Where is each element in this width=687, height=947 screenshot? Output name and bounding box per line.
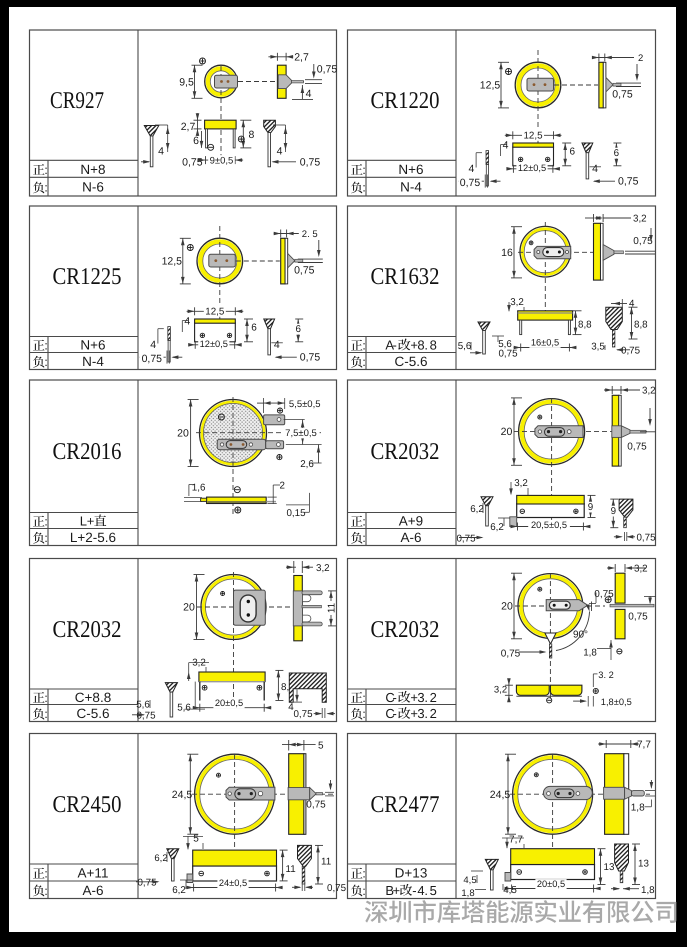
svg-text:0,75: 0,75 [327,883,347,894]
svg-text:4: 4 [158,146,164,158]
svg-text::: : [44,884,47,898]
svg-text:16: 16 [501,247,513,259]
svg-text::: : [362,339,365,353]
svg-text:20: 20 [183,602,195,614]
svg-text:6: 6 [295,324,301,335]
svg-text:6,2: 6,2 [470,504,484,515]
svg-text:4,5: 4,5 [503,885,517,896]
svg-text:0,75: 0,75 [317,64,338,76]
svg-text:16±0,5: 16±0,5 [531,338,559,348]
svg-text:11: 11 [286,864,296,875]
svg-text::: : [362,691,365,705]
svg-text:CR927: CR927 [50,88,104,114]
svg-text::: : [44,707,47,721]
svg-text:0,75: 0,75 [501,649,521,660]
svg-text:6,2: 6,2 [490,522,504,533]
svg-text::: : [44,515,47,529]
svg-text:9,5: 9,5 [179,77,194,89]
svg-text::: : [362,181,365,195]
svg-text:CR1632: CR1632 [371,264,440,290]
svg-text:0,75: 0,75 [636,533,656,544]
svg-text:90°: 90° [573,630,588,641]
svg-text:+: + [393,883,401,898]
svg-text:0,75: 0,75 [627,442,647,453]
svg-text::: : [44,339,47,353]
svg-text:CR2032: CR2032 [371,617,440,643]
svg-text:1,8: 1,8 [641,885,655,896]
svg-text:12,5: 12,5 [205,306,225,317]
svg-text:3. 2: 3. 2 [598,670,614,680]
svg-text::: : [362,515,365,529]
svg-text::: : [44,355,47,369]
svg-text:9: 9 [588,502,593,513]
svg-text:0,75: 0,75 [293,709,313,720]
svg-text:5: 5 [318,741,324,752]
svg-text:11: 11 [321,857,331,868]
svg-text:4: 4 [274,339,280,351]
svg-text:3,2: 3,2 [634,564,648,575]
svg-text:0,75: 0,75 [142,353,163,365]
svg-text:C-5.6: C-5.6 [394,354,427,369]
svg-text:24,5: 24,5 [172,789,193,801]
svg-text:4: 4 [150,339,156,351]
svg-text:CR1220: CR1220 [371,88,440,114]
svg-text:12,5: 12,5 [523,130,543,141]
svg-text:11: 11 [327,603,338,613]
svg-text:20±0,5: 20±0,5 [215,698,243,708]
svg-text::: : [362,163,365,177]
svg-text:6: 6 [251,323,257,334]
svg-text:3,2: 3,2 [316,563,330,574]
svg-text:CR2032: CR2032 [371,439,440,465]
svg-text:.: . [424,338,428,353]
svg-text:0,75: 0,75 [300,157,321,169]
svg-text:0,75: 0,75 [618,176,639,188]
svg-text:4: 4 [277,146,283,158]
svg-text:0,15: 0,15 [286,508,306,519]
svg-text:3,2: 3,2 [192,658,206,669]
svg-text:3,2: 3,2 [510,297,524,308]
svg-text:8,8: 8,8 [634,320,648,331]
svg-text:20: 20 [501,601,513,613]
svg-text:8: 8 [430,338,437,353]
svg-text:8: 8 [249,129,255,141]
svg-text:-: - [412,883,416,898]
svg-text:4: 4 [306,88,312,100]
svg-text:CR2032: CR2032 [53,617,122,643]
svg-text:2: 2 [280,480,285,491]
svg-text::: : [362,884,365,898]
svg-text:4,5: 4,5 [463,875,476,886]
svg-text:24±0,5: 24±0,5 [219,878,247,888]
svg-text:1,8±0,5: 1,8±0,5 [601,697,632,707]
svg-text::: : [44,163,47,177]
svg-text:N-6: N-6 [82,180,104,195]
svg-text:12±0,5: 12±0,5 [518,163,546,173]
svg-text:.: . [424,690,428,705]
svg-text:0,75: 0,75 [182,157,203,169]
svg-text:A+9: A+9 [399,514,423,529]
svg-text:2: 2 [638,53,643,64]
svg-text:C+8.8: C+8.8 [75,690,111,705]
svg-text:20±0,5: 20±0,5 [537,879,565,889]
svg-text:9±0,5: 9±0,5 [210,155,234,166]
svg-text:CR2477: CR2477 [371,792,440,818]
svg-text::: : [44,181,47,195]
svg-text:9: 9 [611,506,616,517]
svg-text:N-4: N-4 [400,180,422,195]
svg-text::: : [362,867,365,881]
svg-text:6: 6 [570,147,576,158]
svg-text:2: 2 [430,690,437,705]
svg-text:2,7: 2,7 [181,121,196,133]
svg-text:0,75: 0,75 [498,349,518,360]
svg-text:4: 4 [184,316,190,328]
svg-text:L+2-5.6: L+2-5.6 [70,530,116,545]
svg-text:N+6: N+6 [398,162,423,177]
svg-text:13: 13 [638,859,649,870]
svg-text:5: 5 [430,883,437,898]
svg-text:.: . [424,706,428,721]
svg-text:6,2: 6,2 [172,885,186,896]
svg-text:5,6: 5,6 [458,341,472,352]
svg-text:N-4: N-4 [82,354,104,369]
svg-text:CR1225: CR1225 [53,264,122,290]
svg-text::: : [362,707,365,721]
svg-text:A+11: A+11 [78,866,109,881]
svg-text:6: 6 [193,135,199,147]
svg-text:-: - [393,690,397,705]
svg-text::: : [44,691,47,705]
svg-text:CR2016: CR2016 [53,439,122,465]
svg-text:4: 4 [468,163,474,175]
svg-text:20: 20 [501,426,513,438]
svg-text:N+6: N+6 [80,338,105,353]
svg-text:C-5.6: C-5.6 [76,706,109,721]
svg-text:.: . [424,883,428,898]
svg-text:0,75: 0,75 [456,534,476,545]
svg-text:7,7: 7,7 [637,740,651,751]
svg-text:0,75: 0,75 [300,352,321,364]
svg-text:4: 4 [629,299,635,310]
svg-text:12±0,5: 12±0,5 [200,339,228,349]
svg-text:6: 6 [614,148,620,159]
svg-text::: : [362,531,365,545]
svg-text:2. 5: 2. 5 [302,229,318,240]
svg-text:5,6: 5,6 [177,703,191,714]
svg-text:A-6: A-6 [82,883,103,898]
svg-text:D+13: D+13 [395,866,428,881]
svg-text:+: + [87,514,95,529]
svg-text::: : [44,867,47,881]
svg-text:0,75: 0,75 [628,612,648,623]
svg-text:2,6: 2,6 [300,459,314,470]
svg-text:20: 20 [177,428,189,440]
svg-text:-: - [393,338,397,353]
svg-text:0,75: 0,75 [612,89,633,101]
svg-text:13: 13 [604,862,615,873]
svg-text:3,2: 3,2 [514,478,528,489]
svg-text:8,8: 8,8 [578,320,592,331]
svg-text:7,5±0,5: 7,5±0,5 [285,428,317,439]
svg-text:0,75: 0,75 [460,177,481,189]
svg-text:CR2450: CR2450 [53,792,122,818]
svg-text:1,8: 1,8 [461,888,474,899]
svg-text:3,2: 3,2 [642,386,656,397]
svg-text:3,5: 3,5 [591,342,605,353]
svg-text::: : [44,531,47,545]
svg-text:5: 5 [193,834,199,845]
svg-text:20,5±0,5: 20,5±0,5 [531,520,567,530]
svg-text:0,75: 0,75 [306,800,326,811]
svg-text:2: 2 [430,706,437,721]
svg-text:12,5: 12,5 [480,80,501,92]
svg-text:12,5: 12,5 [162,256,183,268]
svg-text:5,5±0,5: 5,5±0,5 [289,399,321,410]
svg-text:2,7: 2,7 [294,52,309,64]
svg-text:1,8: 1,8 [583,648,597,659]
svg-text:3,2: 3,2 [633,214,647,225]
svg-text:-: - [393,706,397,721]
svg-text:A-6: A-6 [400,530,421,545]
svg-text:4: 4 [503,140,509,152]
svg-text:6,2: 6,2 [154,853,167,864]
svg-text:7,7: 7,7 [509,835,523,846]
svg-text:3,2: 3,2 [494,685,507,696]
svg-text:4: 4 [592,163,598,175]
svg-text:0,75: 0,75 [294,265,315,277]
svg-text:24,5: 24,5 [490,789,511,801]
svg-text:0,75: 0,75 [621,346,641,357]
svg-text::: : [362,355,365,369]
svg-text:5,6: 5,6 [136,700,150,711]
svg-text:1,8: 1,8 [631,803,645,814]
svg-text:N+8: N+8 [80,162,105,177]
